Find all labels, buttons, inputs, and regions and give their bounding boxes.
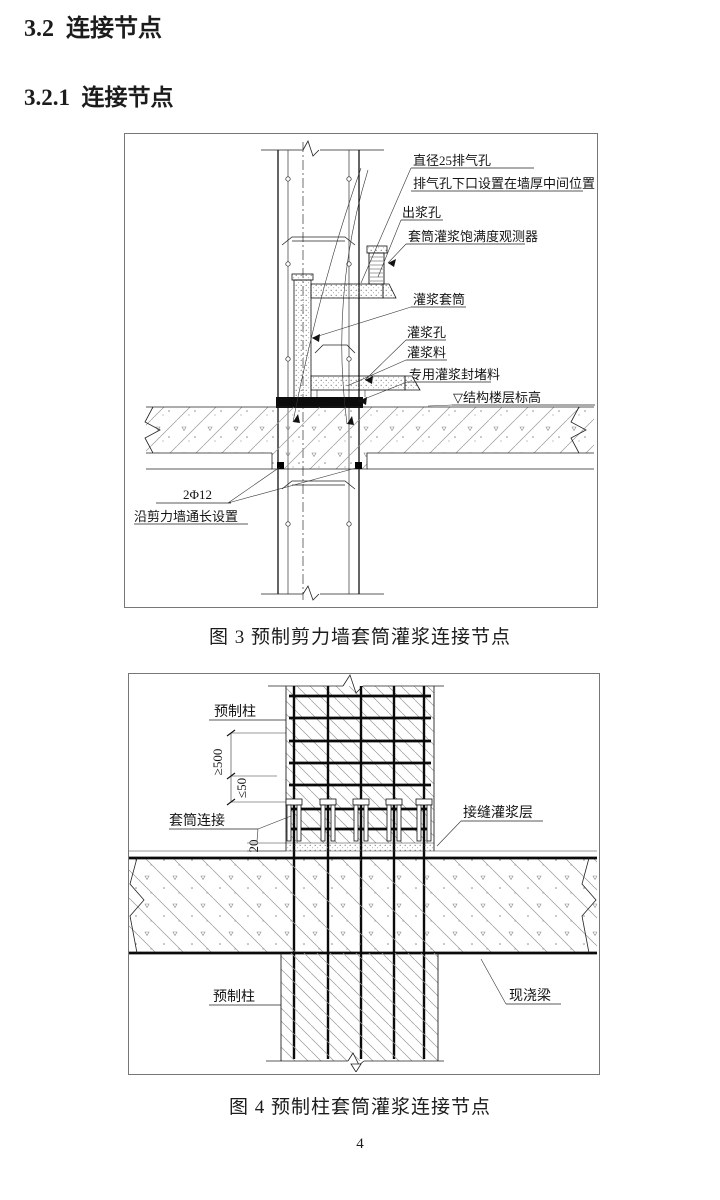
label-joint-grout-layer: 接缝灌浆层 <box>463 804 533 821</box>
label-vent-hole-note: 排气孔下口设置在墙厚中间位置 <box>413 176 595 191</box>
label-grout-material: 灌浆料 <box>407 345 446 360</box>
figure3-drawing: 直径25排气孔 排气孔下口设置在墙厚中间位置 出浆孔 套筒灌浆饱满度观测器 灌浆… <box>125 134 595 605</box>
label-underlines <box>134 168 595 524</box>
label-precast-column-top: 预制柱 <box>214 704 256 720</box>
label-vent-hole: 直径25排气孔 <box>413 153 491 168</box>
leader-lines <box>134 168 595 524</box>
label-rebar-spec: 2Φ12 <box>183 487 212 502</box>
label-grout-sleeve: 灌浆套筒 <box>413 292 465 307</box>
figure4-drawing: 预制柱 套筒连接 接缝灌浆层 预制柱 现浇梁 ≥500 ≤50 20 <box>129 674 597 1072</box>
grout-sleeve <box>292 274 313 401</box>
precast-wall-section <box>261 141 384 600</box>
label-floor-elevation: ▽结构楼层标高 <box>453 390 541 405</box>
wall-bottom-break <box>303 586 319 600</box>
label-grout-hole: 灌浆孔 <box>407 325 446 340</box>
label-sealing-material: 专用灌浆封堵料 <box>409 367 500 382</box>
cast-in-place-beam-section <box>129 851 597 953</box>
section-heading: 3.2 连接节点 <box>24 8 162 43</box>
dim-joint-thickness: 20 <box>246 840 261 853</box>
dim-embed-length: ≥500 <box>210 749 225 776</box>
page-number: 4 <box>0 1136 720 1153</box>
label-outlet-hole: 出浆孔 <box>402 205 441 220</box>
figure4-caption: 图 4 预制柱套筒灌浆连接节点 <box>0 1092 720 1119</box>
figure4-frame: 预制柱 套筒连接 接缝灌浆层 预制柱 现浇梁 ≥500 ≤50 20 <box>128 673 600 1075</box>
joint-grout-layer <box>286 843 434 851</box>
distribution-bar-left <box>277 462 284 469</box>
label-cast-in-place-beam: 现浇梁 <box>509 988 551 1004</box>
floor-slab <box>145 407 594 469</box>
dim-stirrup-spacing: ≤50 <box>234 778 249 798</box>
seal-band <box>276 397 363 408</box>
vent-tube <box>311 284 396 298</box>
label-observer: 套筒灌浆饱满度观测器 <box>408 229 538 244</box>
distribution-bar-right <box>355 462 362 469</box>
bottom-break-arrow <box>351 1064 361 1072</box>
label-rebar-note: 沿剪力墙通长设置 <box>134 509 238 524</box>
label-sleeve-connection: 套筒连接 <box>169 812 225 829</box>
figure3-caption: 图 3 预制剪力墙套筒灌浆连接节点 <box>0 622 720 649</box>
wall-top-break <box>303 141 319 156</box>
grout-fullness-observer <box>367 246 387 284</box>
document-page: 3.2 连接节点 3.2.1 连接节点 <box>0 0 720 1200</box>
subsection-heading: 3.2.1 连接节点 <box>24 78 174 112</box>
lower-precast-column <box>266 953 444 1072</box>
figure3-frame: 直径25排气孔 排气孔下口设置在墙厚中间位置 出浆孔 套筒灌浆饱满度观测器 灌浆… <box>124 133 598 608</box>
label-precast-column-bottom: 预制柱 <box>213 989 255 1005</box>
